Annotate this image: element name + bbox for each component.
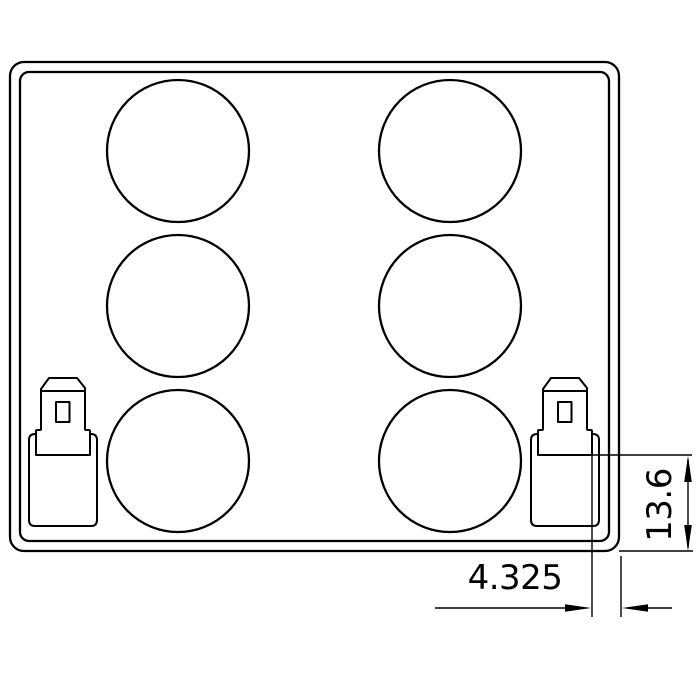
arrowhead-up-icon [684,456,692,482]
cell-circle [379,390,521,532]
terminal-left [29,378,97,526]
arrowhead-left-icon [622,604,648,612]
body-outer-outline [10,62,619,551]
dimension-annotations: 4.325 13.6 [435,455,693,617]
cell-circle [379,235,521,377]
cell-circle [107,80,249,222]
cell-circle [107,390,249,532]
battery-body [10,62,619,551]
dimension-horizontal: 4.325 [435,558,672,612]
arrowhead-right-icon [565,604,591,612]
battery-top-view-drawing: 4.325 13.6 [0,0,700,700]
cell-circles [107,80,521,532]
terminal-right [531,378,599,526]
arrowhead-down-icon [684,525,692,551]
cell-circle [379,80,521,222]
dimension-value-vertical: 13.6 [640,468,680,542]
technical-drawing-page: 4.325 13.6 [0,0,700,700]
dimension-value-horizontal: 4.325 [468,558,563,598]
cell-circle [107,235,249,377]
dimension-vertical: 13.6 [640,456,692,551]
